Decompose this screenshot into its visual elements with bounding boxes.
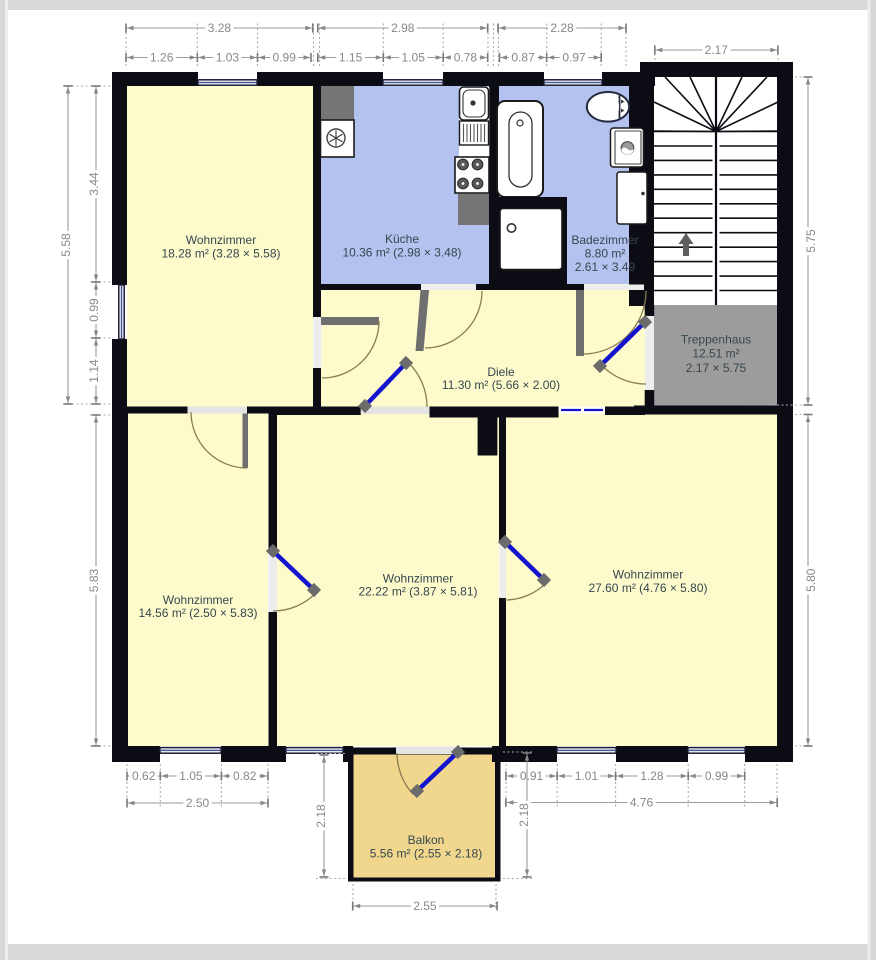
svg-text:0.99: 0.99 [705,769,729,783]
svg-text:2.18: 2.18 [517,803,531,827]
svg-text:Badezimmer: Badezimmer [571,233,638,247]
svg-text:1.14: 1.14 [87,359,101,383]
svg-text:1.28: 1.28 [640,769,664,783]
svg-text:Wohnzimmer: Wohnzimmer [163,593,233,607]
svg-text:1.05: 1.05 [402,51,426,65]
svg-text:0.62: 0.62 [132,769,156,783]
svg-text:4.76: 4.76 [630,796,654,810]
svg-text:0.91: 0.91 [520,769,544,783]
svg-text:Treppenhaus: Treppenhaus [681,333,751,347]
svg-text:0.87: 0.87 [511,51,535,65]
svg-text:1.15: 1.15 [339,51,363,65]
svg-text:3.28: 3.28 [208,21,232,35]
svg-text:11.30 m² (5.66 × 2.00): 11.30 m² (5.66 × 2.00) [442,378,560,392]
svg-text:10.36 m² (2.98 × 3.48): 10.36 m² (2.98 × 3.48) [342,246,461,260]
svg-text:Diele: Diele [487,365,515,379]
svg-text:8.80 m²: 8.80 m² [585,247,626,261]
svg-text:5.58: 5.58 [59,233,73,257]
svg-text:2.18: 2.18 [314,804,328,828]
svg-text:Wohnzimmer: Wohnzimmer [186,233,256,247]
svg-text:Küche: Küche [385,232,419,246]
svg-text:3.44: 3.44 [87,172,101,196]
svg-text:2.55: 2.55 [413,899,437,913]
svg-text:14.56 m² (2.50 × 5.83): 14.56 m² (2.50 × 5.83) [138,606,257,620]
svg-text:5.83: 5.83 [87,568,101,592]
svg-text:1.03: 1.03 [216,51,240,65]
svg-text:Balkon: Balkon [408,833,445,847]
svg-text:5.75: 5.75 [804,229,818,253]
svg-text:0.78: 0.78 [454,51,478,65]
svg-text:1.01: 1.01 [575,769,599,783]
svg-text:Wohnzimmer: Wohnzimmer [613,568,683,582]
svg-text:5.56 m² (2.55 × 2.18): 5.56 m² (2.55 × 2.18) [370,847,482,861]
svg-text:2.50: 2.50 [186,796,210,810]
svg-text:1.26: 1.26 [150,51,174,65]
svg-text:0.99: 0.99 [87,298,101,322]
svg-text:18.28 m² (3.28 × 5.58): 18.28 m² (3.28 × 5.58) [161,247,280,261]
svg-text:27.60 m² (4.76 × 5.80): 27.60 m² (4.76 × 5.80) [588,581,707,595]
svg-text:12.51 m²: 12.51 m² [692,347,739,361]
svg-text:0.82: 0.82 [233,769,257,783]
svg-text:2.17: 2.17 [705,43,729,57]
svg-text:2.98: 2.98 [391,21,415,35]
svg-text:2.61 × 3.49: 2.61 × 3.49 [575,260,636,274]
svg-text:5.80: 5.80 [804,568,818,592]
svg-text:Wohnzimmer: Wohnzimmer [383,572,453,586]
svg-text:1.05: 1.05 [179,769,203,783]
svg-text:2.17 × 5.75: 2.17 × 5.75 [686,361,747,375]
svg-text:0.97: 0.97 [562,51,586,65]
svg-text:22.22 m² (3.87 × 5.81): 22.22 m² (3.87 × 5.81) [358,585,477,599]
svg-text:2.28: 2.28 [550,21,574,35]
svg-text:0.99: 0.99 [273,51,297,65]
